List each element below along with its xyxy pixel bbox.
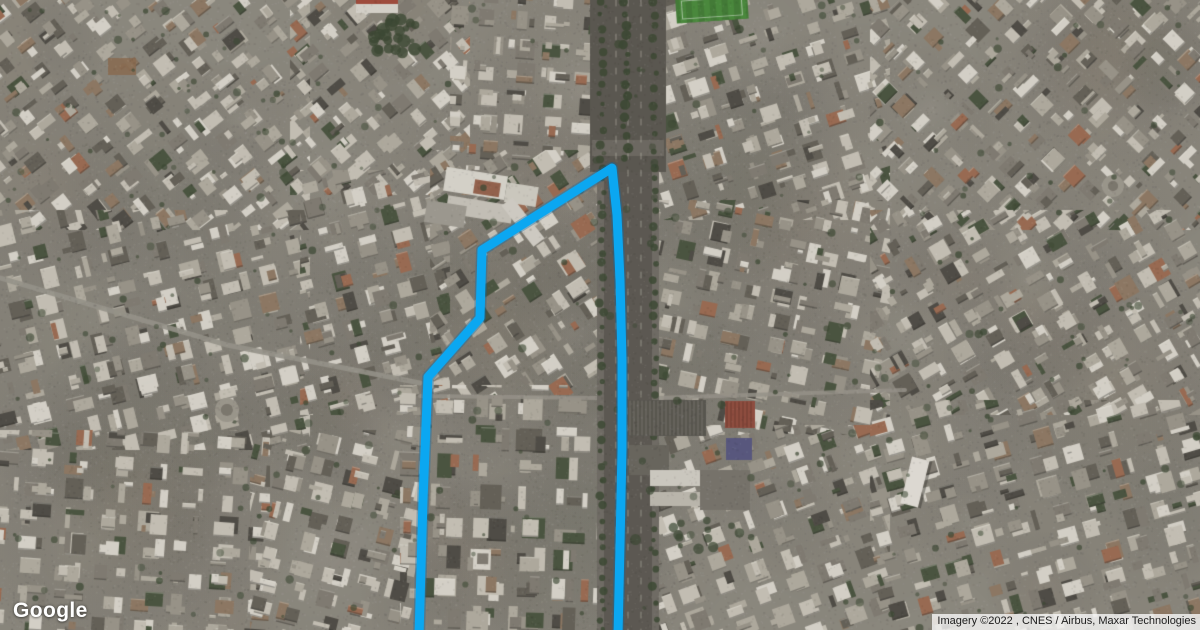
satellite-imagery-canvas[interactable] (0, 0, 1200, 630)
google-logo[interactable]: Google (13, 599, 88, 623)
imagery-attribution: Imagery ©2022 , CNES / Airbus, Maxar Tec… (932, 614, 1200, 630)
map-viewport[interactable]: Google Imagery ©2022 , CNES / Airbus, Ma… (0, 0, 1200, 630)
